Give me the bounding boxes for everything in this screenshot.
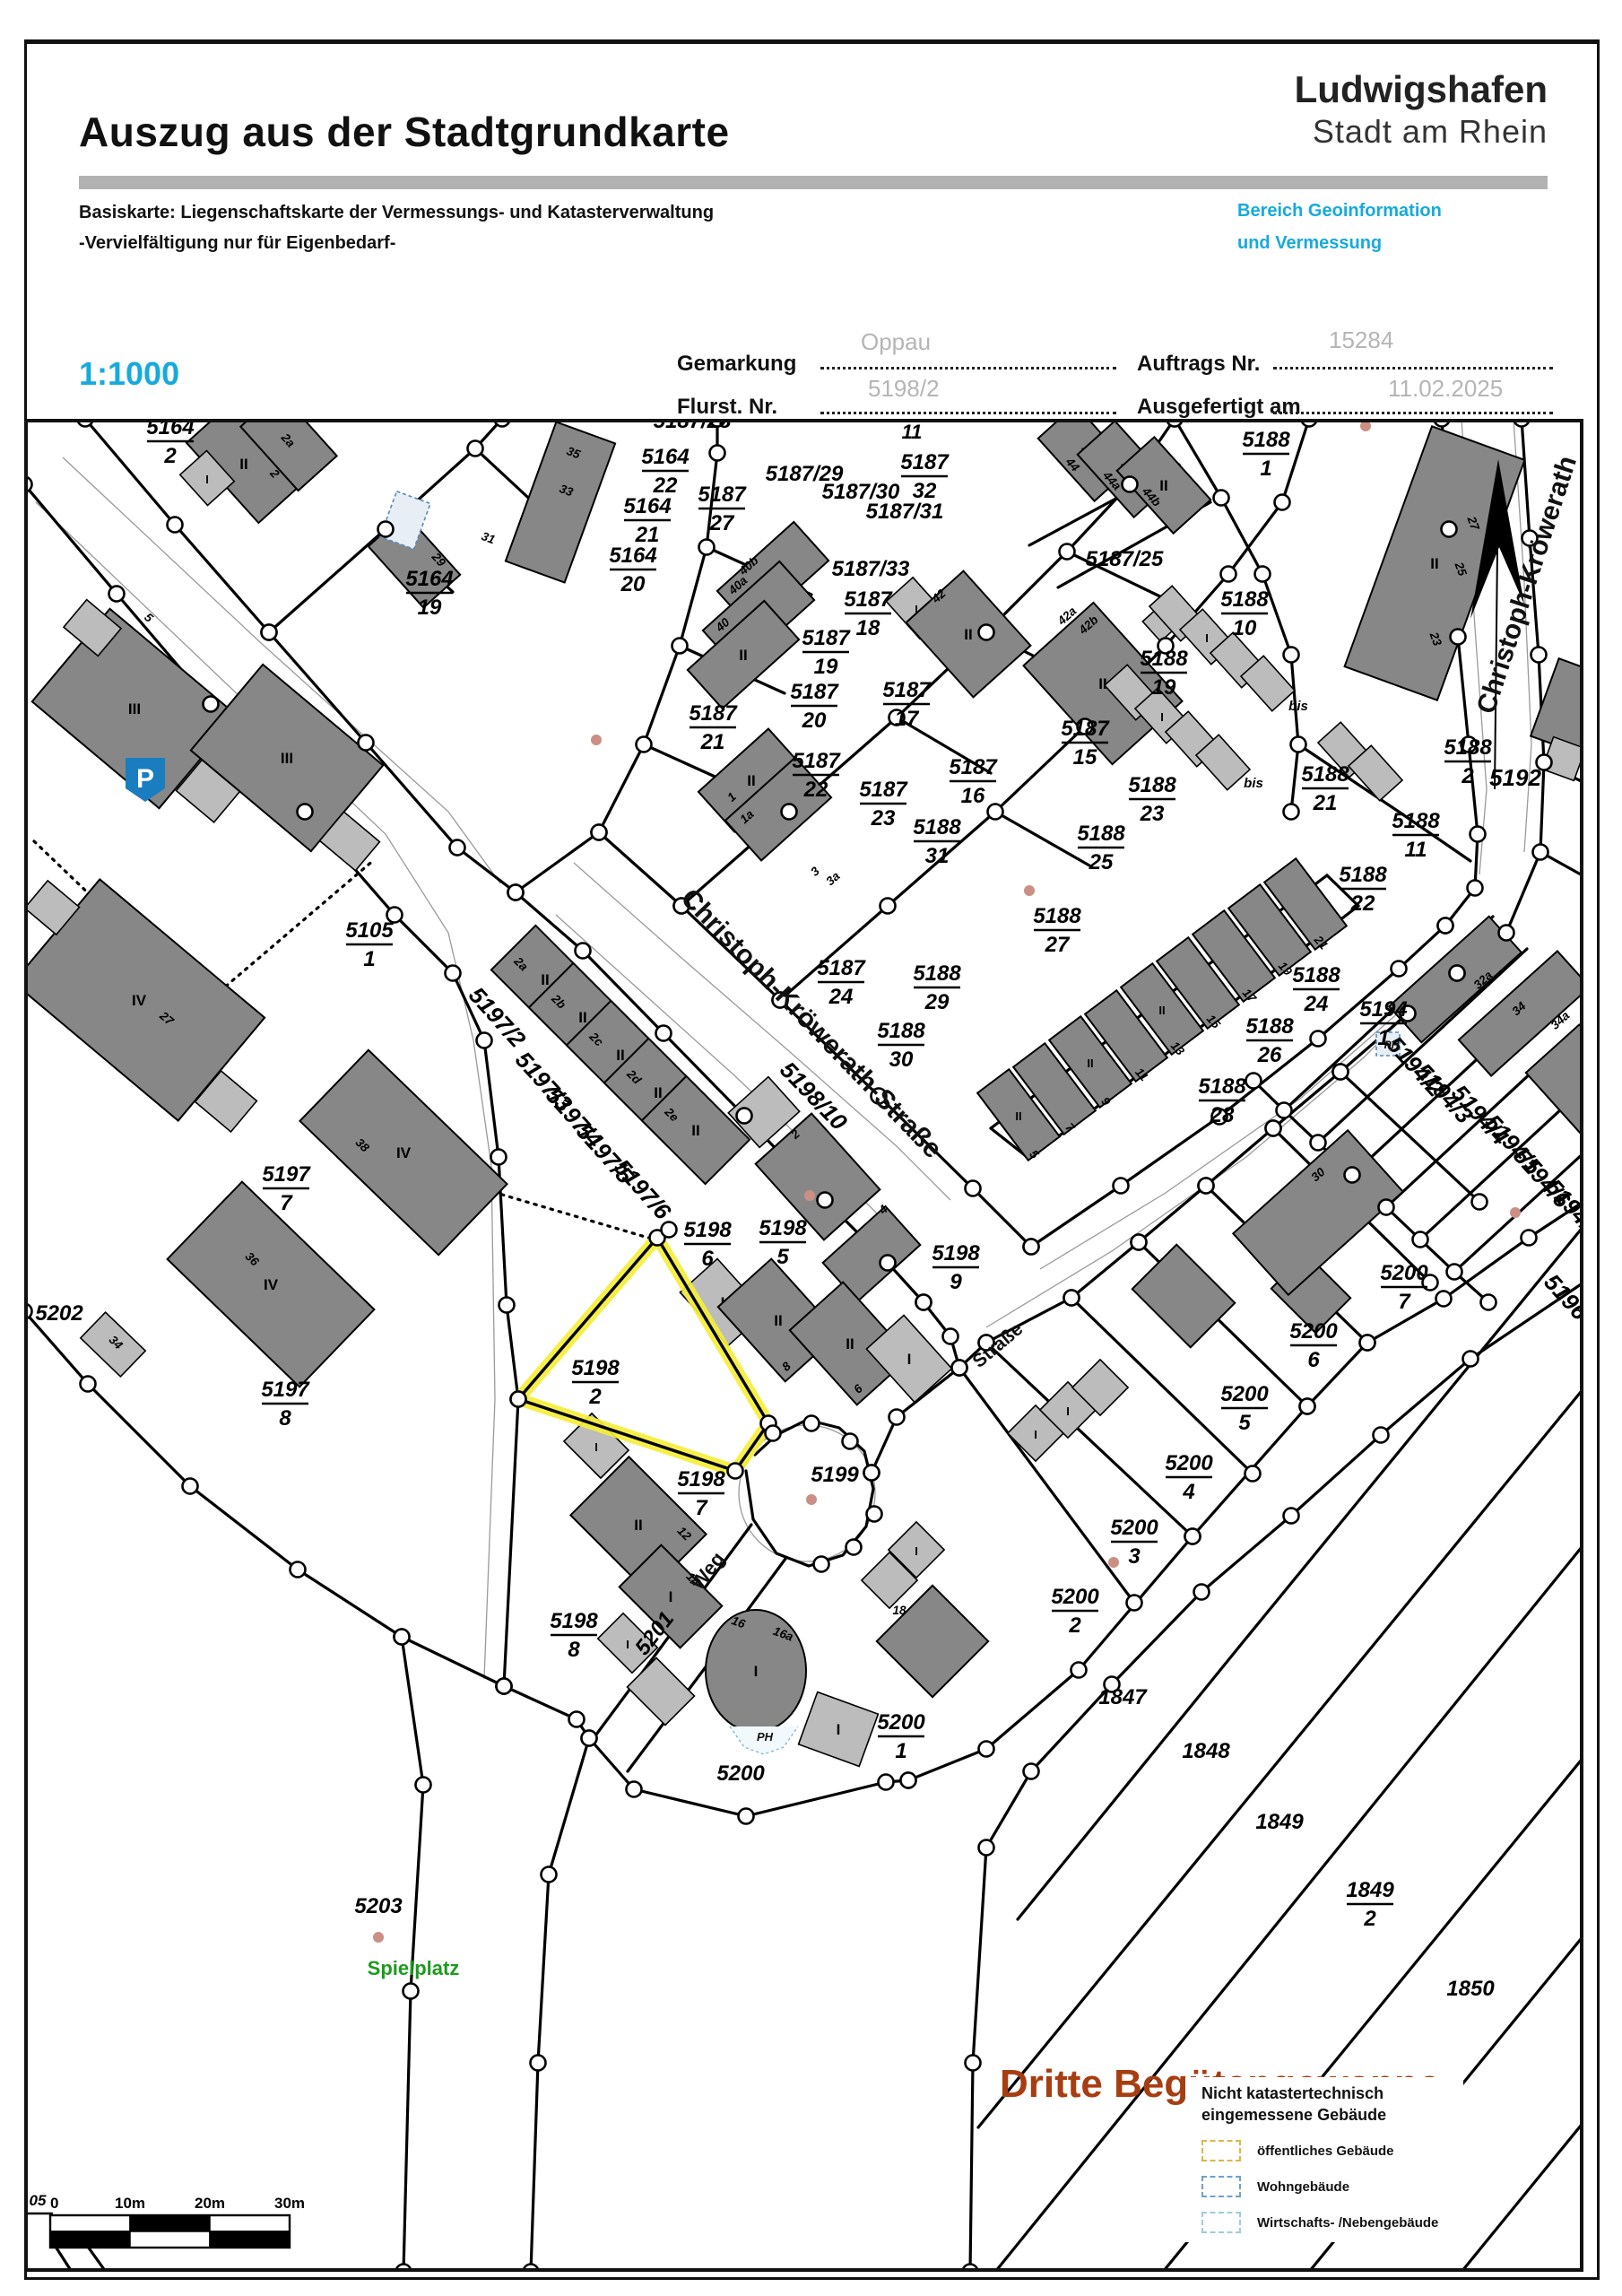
boundary-node (880, 899, 896, 914)
parcel-label: 11 (902, 421, 923, 443)
building-floors-label: II (739, 647, 747, 664)
parcel-number: 5200 (1380, 1261, 1428, 1285)
boundary-node (1199, 1178, 1214, 1194)
parcel-denominator: 24 (828, 985, 854, 1009)
boundary-node (1123, 477, 1138, 492)
parcel-label: 518721 (689, 701, 738, 754)
boundary-node (843, 1434, 858, 1449)
parcel-denominator: 2 (163, 444, 177, 468)
parcel-number: 5200 (877, 1710, 925, 1735)
boundary-node (1114, 1178, 1129, 1194)
parcel-number: 5187 (817, 956, 866, 980)
building-floors-label: I (1066, 1405, 1070, 1418)
parcel-label: 518826 (1245, 1014, 1294, 1067)
boundary-node (1413, 1232, 1428, 1248)
parcel-label: 52002 (1051, 1585, 1099, 1638)
scalebar-segment (50, 2231, 130, 2248)
parcel-label: 518732 (900, 450, 950, 503)
boundary-node (1442, 522, 1457, 537)
parcel-label: 518823 (1128, 773, 1176, 826)
parcel-denominator: 4 (1182, 1480, 1194, 1504)
boundary-node (699, 540, 715, 555)
parcel-label: 5187/33 (832, 557, 910, 581)
boundary-node (766, 1426, 781, 1441)
boundary-node (1060, 544, 1075, 560)
parcel-label: 518716 (949, 755, 998, 808)
parcel-label: 52005 (1220, 1382, 1269, 1435)
house-number: 3 (808, 864, 822, 879)
parcel-denominator: 26 (1257, 1043, 1282, 1067)
map-content: IIIIIIIIIIVIVIVIIIIIIIIIIIIIIIIIIIIIIIII… (13, 392, 1622, 2280)
parcel-number: 5187 (859, 778, 908, 802)
boundary-node (979, 1840, 994, 1856)
parcel-label: 518718 (844, 587, 893, 640)
parcel-label: 51978 (261, 1378, 310, 1431)
legend-swatch (1201, 2212, 1241, 2233)
legend-item-label: Wohngebäude (1257, 2179, 1349, 2195)
parcel-number: 5164 (609, 544, 656, 568)
parcel-number: 5164 (623, 494, 671, 518)
boundary-node (1533, 845, 1548, 860)
boundary-node (1064, 1291, 1080, 1306)
parcel-label: 518723 (859, 778, 908, 831)
parcel-denominator: 20 (620, 572, 646, 596)
building-floors-label: II (634, 1517, 642, 1534)
scalebar-label: 30m (274, 2195, 305, 2212)
boundary-node (1284, 1509, 1299, 1524)
boundary-node (378, 522, 394, 537)
boundary-node (1277, 1103, 1292, 1118)
parcel-label: bis (1288, 699, 1308, 714)
boundary-node (710, 446, 725, 461)
scalebar-segment (130, 2231, 210, 2248)
parcel-denominator: 2 (1363, 1907, 1376, 1931)
dotted-line (1273, 366, 1553, 370)
parcel-denominator: 7 (695, 1496, 708, 1520)
parcel-number: 5197 (261, 1378, 310, 1402)
parcel-denominator: 19 (1152, 675, 1176, 700)
building-floors-label: II (747, 772, 755, 789)
building (1526, 1025, 1622, 1150)
parcel-number: 5188 (913, 815, 961, 839)
building-floors-label: I (1034, 1428, 1037, 1441)
parcel-number: 5198 (759, 1216, 807, 1240)
parcel-denominator: 2 (588, 1385, 602, 1409)
parcel-number: 5198 (550, 1609, 598, 1633)
legend-item-label: Wirtschafts- /Nebengebäude (1257, 2215, 1438, 2231)
parcel-number: 5187 (790, 680, 839, 704)
boundary-node (804, 1416, 820, 1431)
building-floors-label: II (239, 456, 247, 473)
parcel-denominator: 15 (1073, 745, 1097, 770)
parcel-number: 5198 (932, 1241, 980, 1265)
parcel-number: 5188 (1301, 762, 1349, 787)
boundary-node (359, 735, 374, 751)
boundary-node (979, 625, 994, 640)
building-floors-label: IV (132, 992, 147, 1009)
boundary-node (1360, 1335, 1375, 1351)
parcel-denominator: 8 (568, 1638, 580, 1662)
parcel-label: 1848 (1182, 1739, 1230, 1763)
parcel-label: 51882 (1444, 735, 1492, 788)
legend-title-line1: Nicht katastertechnisch (1201, 2083, 1463, 2104)
legend-swatch (1201, 2140, 1241, 2161)
building-floors-label: I (754, 1663, 759, 1680)
parcel-number: 5188 (1198, 1074, 1246, 1099)
spielplatz-label: Spielplatz (368, 1957, 460, 1979)
scalebar-segment (210, 2215, 290, 2231)
flurst-label: Flurst. Nr. (677, 395, 777, 420)
boundary-node (1590, 1186, 1605, 1201)
boundary-node (582, 1731, 597, 1746)
parcel-number: 5197 (262, 1162, 311, 1187)
parcel-label: 518720 (790, 680, 839, 733)
boundary-node (168, 517, 183, 533)
boundary-node (916, 1295, 932, 1310)
boundary-node (1481, 1295, 1496, 1310)
building-floors-label: IV (264, 1276, 279, 1293)
house-number: 5 (142, 610, 156, 625)
parcel-denominator: 8 (279, 1406, 291, 1431)
parcel-number: 5164 (641, 445, 689, 469)
parcel-number: 5188 (1077, 822, 1125, 846)
parcel-denominator: 25 (1089, 850, 1114, 874)
boundary-node (672, 639, 688, 654)
parcel-label: 5194/7 (1540, 1173, 1609, 1245)
parcel-boundary (402, 1637, 423, 2272)
boundary-node (298, 804, 313, 820)
parcel-denominator: 29 (924, 990, 950, 1014)
boundary-node (864, 1465, 880, 1481)
parcel-denominator: 20 (802, 709, 827, 733)
building-floors-label: III (128, 700, 141, 717)
boundary-node (446, 966, 461, 981)
parcel-label: 516421 (623, 494, 671, 547)
parcel-label: 52004 (1165, 1451, 1213, 1504)
boundary-node (499, 1298, 515, 1313)
boundary-node (943, 1329, 958, 1344)
parcel-number: 5187 (792, 749, 841, 773)
building (1531, 658, 1611, 755)
parcel-label: 1849 (1255, 1810, 1304, 1834)
boundary-node (395, 1630, 410, 1645)
boundary-node (1450, 966, 1465, 981)
parcel-label: 05 (30, 2192, 47, 2209)
boundary-node (491, 1150, 507, 1165)
point-marker (1510, 1207, 1521, 1218)
parcel-label: 51642 (146, 415, 194, 468)
title-divider (79, 176, 1548, 189)
boundary-node (1284, 648, 1299, 663)
boundary-node (109, 587, 125, 602)
parcel-label: 518719 (802, 626, 851, 679)
parcel-label: 5200 (716, 1761, 765, 1786)
boundary-node (1463, 1352, 1479, 1367)
parcel-label: 5202 (35, 1301, 83, 1326)
boundary-node (576, 944, 591, 959)
point-marker (373, 1932, 384, 1943)
parcel-label: 51988 (550, 1609, 598, 1662)
parcel-boundary (56, 2247, 72, 2272)
boundary-node (867, 1507, 882, 1522)
parcel-label: 518829 (913, 961, 961, 1014)
boundary-node (901, 1773, 916, 1788)
parcel-boundary (88, 2247, 106, 2272)
parcel-number: 5188 (1292, 963, 1340, 987)
boundary-node (569, 1712, 585, 1727)
parcel-number: 5188 (1033, 904, 1081, 928)
parcel-label: 52001 (877, 1710, 925, 1763)
parcel-label: 51989 (932, 1241, 980, 1294)
boundary-node (497, 1679, 512, 1694)
boundary-node (1468, 881, 1483, 896)
house-number: 31 (480, 529, 497, 546)
department-line2: und Vermessung (1237, 233, 1382, 254)
dotted-line (820, 411, 1116, 414)
boundary-node (1275, 495, 1290, 510)
building-floors-label: III (281, 750, 293, 767)
parcel-denominator: 21 (1313, 791, 1338, 815)
parcel-number: 5188 (913, 961, 961, 986)
parcel-number: 5200 (1165, 1451, 1213, 1475)
parcel-label: 516419 (405, 567, 453, 620)
boundary-node (1024, 1239, 1039, 1255)
parcel-number: 5164 (405, 567, 453, 591)
dotted-line (820, 366, 1116, 370)
parcel-denominator: 7 (280, 1191, 293, 1215)
page-title: Auszug aus der Stadtgrundkarte (79, 108, 730, 156)
parcel-number: 5198 (677, 1467, 725, 1492)
point-marker (1108, 1557, 1119, 1568)
boundary-node (1194, 1585, 1210, 1600)
parcel-number: 5198 (571, 1356, 620, 1380)
scalebar-segment (50, 2215, 130, 2231)
boundary-node (416, 1778, 431, 1793)
boundary-node (656, 1026, 672, 1041)
building-floors-label: II (1158, 1004, 1165, 1017)
parcel-denominator: 27 (1045, 933, 1071, 957)
building-floors-label: I (915, 1544, 918, 1558)
parcel-boundary (531, 1738, 589, 2272)
boundary-node (889, 1410, 905, 1425)
boundary-node (262, 625, 277, 640)
scalebar-label: 0 (50, 2195, 58, 2212)
building-floors-label: II (1430, 555, 1438, 572)
point-marker (804, 1190, 815, 1201)
legend-item: Wohngebäude (1201, 2176, 1463, 2197)
logo-city-name: Ludwigshafen (1198, 68, 1548, 111)
parcel-denominator: 1 (1260, 457, 1271, 481)
boundary-node (403, 1984, 419, 1999)
parking-icon-letter: P (136, 764, 154, 794)
boundary-node (1071, 1663, 1087, 1678)
parcel-denominator: 30 (889, 1048, 914, 1072)
boundary-node (627, 1782, 642, 1797)
parcel-number: 5188 (1220, 587, 1269, 612)
house-number: 18 (892, 1604, 906, 1617)
parcel-number: 5188 (877, 1019, 925, 1043)
parcel-denominator: 31 (925, 844, 950, 868)
street-name-strasse: Straße (968, 1318, 1027, 1372)
building-floors-label: I (907, 1351, 912, 1368)
parcel-label: 51881 (1242, 428, 1290, 481)
auftrag-value: 15284 (1329, 326, 1393, 354)
building-floors-label: I (594, 1440, 598, 1454)
parcel-number: 5188 (1245, 1014, 1294, 1039)
boundary-node (183, 1479, 198, 1494)
parcel-boundary (1462, 2106, 1597, 2272)
parcel-label: 518831 (913, 815, 961, 868)
boundary-node (1590, 1266, 1605, 1282)
parcel-boundary (995, 812, 1089, 865)
legend-swatch (1201, 2176, 1241, 2197)
boundary-node (1291, 737, 1306, 752)
parcel-number: 5187 (949, 755, 998, 779)
parcel-denominator: 11 (1405, 838, 1427, 862)
parcel-denominator: 1 (363, 947, 375, 971)
parcel-label: 518825 (1077, 822, 1125, 874)
parcel-number: 5188 (1392, 809, 1440, 833)
boundary-node (1284, 804, 1299, 820)
parcel-denominator: 2 (1068, 1613, 1081, 1638)
parcel-denominator: 17 (895, 707, 920, 731)
boundary-node (1221, 567, 1236, 582)
boundary-node (814, 1557, 829, 1572)
parcel-number: 5188 (1128, 773, 1176, 797)
parcel-number: 5187 (1061, 717, 1110, 741)
parcel-denominator: 5 (776, 1245, 789, 1269)
building-floors-label: II (774, 1312, 782, 1329)
parcel-label: 518811 (1392, 809, 1440, 862)
building-floors-label: I (205, 473, 209, 486)
scalebar-label: 10m (115, 2195, 145, 2212)
parcel-number: 5188 (1444, 735, 1492, 760)
building (1132, 1245, 1236, 1348)
parcel-number: 5200 (1289, 1319, 1338, 1344)
parcel-denominator: 3 (1128, 1544, 1141, 1569)
boundary-node (879, 1775, 894, 1790)
parcel-label: 518824 (1292, 963, 1340, 1016)
basemap-note: Basiskarte: Liegenschaftskarte der Verme… (79, 203, 714, 223)
building-floors-label: I (626, 1638, 629, 1651)
parcel-number: 1849 (1346, 1878, 1394, 1902)
parcel-number: 5198 (683, 1218, 732, 1242)
boundary-node (966, 1181, 981, 1196)
boundary-node (1345, 1168, 1360, 1183)
building-floors-label: IV (396, 1144, 412, 1161)
parcel-label: 5187/31 (866, 500, 944, 524)
boundary-node (531, 2056, 546, 2071)
boundary-node (511, 1392, 526, 1407)
boundary-node (988, 804, 1003, 820)
parcel-denominator: 16 (961, 784, 985, 808)
parcel-boundary (1540, 852, 1597, 883)
scalebar-label: 20m (195, 2195, 225, 2212)
parcel-label: 518827 (1033, 904, 1081, 957)
boundary-node (1127, 1596, 1142, 1611)
parcel-label: 51986 (683, 1218, 732, 1271)
parcel-label: 5203 (354, 1894, 403, 1918)
parcel-label: 18492 (1346, 1878, 1394, 1931)
parcel-label: 518724 (817, 956, 866, 1009)
parcel-denominator: 10 (1233, 616, 1257, 640)
scalebar-segment (210, 2231, 290, 2248)
parcel-number: 5187 (900, 450, 950, 474)
parcel-denominator: 6 (1307, 1348, 1320, 1372)
parcel-label: 52007 (1380, 1261, 1428, 1314)
parcel-denominator: 9 (950, 1270, 962, 1294)
parcel-number: 5187 (698, 483, 747, 507)
parcel-denominator: 7 (1398, 1290, 1411, 1314)
boundary-node (846, 1540, 862, 1555)
building-floors-label: II (541, 971, 549, 988)
boundary-node (450, 840, 465, 856)
parcel-number: 5187 (802, 626, 851, 650)
flurst-value: 5198/2 (868, 375, 940, 403)
parcel-number: 5187 (844, 587, 893, 612)
copy-note: -Vervielfältigung nur für Eigenbedarf- (79, 233, 395, 254)
parcel-number: 5200 (1110, 1516, 1158, 1540)
building-floors-label: II (846, 1335, 854, 1352)
boundary-node (1451, 630, 1466, 645)
parcel-denominator: 27 (709, 511, 735, 535)
building-floors-label: II (1159, 477, 1167, 494)
parcel-label: 51985 (759, 1216, 807, 1269)
parcel-number: 5188 (1140, 647, 1188, 671)
parcel-number: 5105 (345, 918, 394, 943)
boundary-node (1245, 1466, 1261, 1482)
point-marker (1024, 885, 1035, 896)
building-floors-label: II (1015, 1109, 1021, 1123)
parcel-number: 5188 (1339, 863, 1387, 887)
boundary-node (1379, 1200, 1394, 1215)
boundary-node (1132, 1235, 1147, 1250)
point-marker (806, 1494, 817, 1505)
boundary-node (542, 1867, 557, 1883)
boundary-node (1472, 1195, 1488, 1210)
parcel-denominator: 21 (700, 730, 725, 754)
boundary-node (1185, 1529, 1201, 1544)
parcel-denominator: 2 (1461, 764, 1474, 788)
parcel-label: 518821 (1301, 762, 1349, 815)
parcel-label: 5187/25 (1086, 547, 1164, 571)
boundary-node (1300, 1399, 1315, 1414)
boundary-node (966, 2056, 981, 2071)
boundary-node (737, 1109, 752, 1124)
legend: Nicht katastertechnisch eingemessene Geb… (1185, 2077, 1463, 2242)
parcel-denominator: 1 (895, 1739, 906, 1763)
parcel-denominator: 22 (803, 778, 828, 802)
boundary-node (291, 1562, 306, 1578)
gemarkung-value: Oppau (861, 328, 931, 356)
parcel-label: 518828 (1198, 1074, 1246, 1127)
parcel-denominator: 19 (814, 655, 838, 679)
boundary-node (728, 1464, 743, 1479)
boundary-node (1470, 827, 1486, 842)
logo-city-slogan: Stadt am Rhein (1198, 113, 1548, 151)
parcel-denominator: 23 (1140, 802, 1165, 826)
boundary-node (1436, 1291, 1452, 1307)
parcel-label: 516422 (641, 445, 689, 498)
boundary-node (1522, 1231, 1537, 1246)
boundary-node (81, 1377, 96, 1392)
parcel-label: 52006 (1289, 1319, 1338, 1372)
parcel-boundary (908, 1193, 1597, 1780)
boundary-node (739, 1809, 754, 1824)
building-floors-label: II (964, 626, 972, 643)
boundary-node (1214, 491, 1229, 506)
gemarkung-label: Gemarkung (677, 352, 796, 377)
